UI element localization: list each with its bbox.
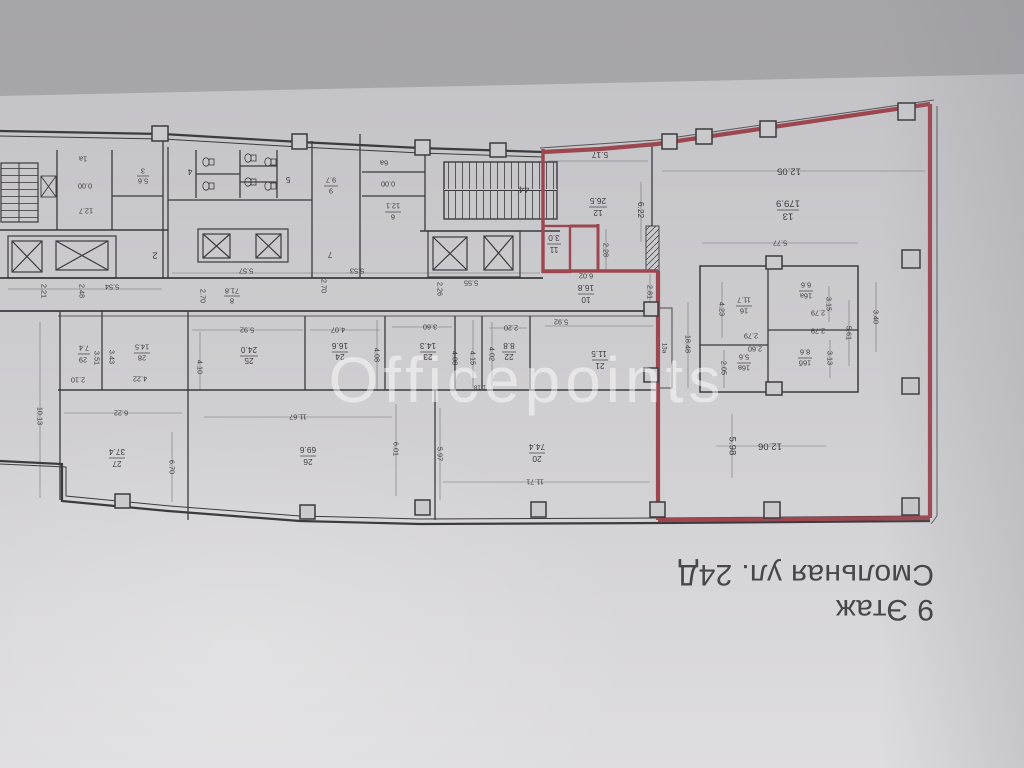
- plan-label: 5.55: [464, 279, 478, 288]
- plan-label: 25: [244, 356, 254, 366]
- plan-label: 12.1: [386, 202, 400, 211]
- plan-label: 5.17: [592, 150, 609, 160]
- plan-label: 5.53: [350, 267, 364, 276]
- stairwell-44: [444, 162, 557, 219]
- watermark-text: Officepoints: [329, 344, 726, 416]
- plan-label: 2.79: [811, 309, 825, 318]
- plan-label: 5.54: [105, 283, 119, 292]
- plan-label: 2.70: [199, 289, 208, 303]
- plan-label: 11.71: [526, 478, 544, 487]
- plan-label: 7: [327, 250, 332, 260]
- floor-plan-drawing: 1а 0.00 12.7 3 5.6 4 5 9.7 9 6а 0.00 12.…: [0, 0, 1024, 768]
- plan-label: 44: [518, 184, 529, 195]
- plan-label: 4: [187, 167, 192, 177]
- plan-label: 5.97: [436, 447, 445, 461]
- plan-label: 2.28: [602, 243, 611, 257]
- plan-label: 6.6: [801, 281, 811, 290]
- plan-label: 5.98: [727, 437, 738, 456]
- plan-label: 2.20: [504, 324, 518, 333]
- plan-label: 3.0: [548, 233, 560, 243]
- plan-label: 14.5: [135, 343, 149, 352]
- plan-label: 12.06: [758, 441, 782, 452]
- plan-label: 28: [138, 354, 146, 363]
- caption-address-line: Смольная ул. 24Д: [638, 557, 934, 592]
- plan-label: 4.07: [331, 326, 345, 335]
- plan-label: 5.61: [845, 326, 854, 340]
- plan-label: 4.10: [196, 360, 205, 374]
- plan-label: 3.60: [423, 323, 437, 332]
- plan-label: 16: [740, 307, 748, 316]
- plan-label: 6: [391, 213, 395, 222]
- plan-label: 6.22: [114, 409, 128, 418]
- plan-label: 4.23: [718, 302, 727, 316]
- floor-caption: 9 Этаж Смольная ул. 24Д: [638, 551, 934, 627]
- plan-label: 2.26: [436, 282, 445, 296]
- plan-label: 2: [152, 250, 157, 261]
- plan-label: 26.5: [590, 196, 607, 206]
- plan-label: 5.6: [739, 353, 749, 362]
- plan-label: 10: [581, 295, 591, 305]
- plan-label: 1а: [78, 155, 87, 164]
- plan-label: 27: [112, 459, 122, 469]
- plan-label: 11.7: [737, 296, 751, 305]
- plan-label: 2.79: [744, 332, 758, 341]
- plan-label: 2.21: [40, 284, 49, 298]
- plan-label: 3.40: [872, 310, 881, 324]
- plan-label: 26: [303, 457, 313, 467]
- stairwell-left: [1, 163, 38, 222]
- plan-label: 6а: [379, 159, 388, 168]
- plan-label: 71.8: [225, 287, 239, 296]
- plan-label: 12: [593, 208, 603, 218]
- plan-label: 7.4: [79, 344, 89, 353]
- plan-label: 37.4: [109, 447, 126, 457]
- plan-label: 6.70: [168, 460, 177, 474]
- plan-label: 16б: [799, 359, 811, 368]
- plan-label: 5: [285, 175, 290, 185]
- plan-label: 5.92: [240, 326, 254, 335]
- plan-label: 69.6: [300, 445, 317, 455]
- plan-label: 74.4: [529, 442, 546, 452]
- plan-label: 0.00: [381, 180, 395, 189]
- plan-label: 11.67: [289, 413, 307, 422]
- plan-label: 6.02: [579, 272, 593, 281]
- plan-label: 12.05: [777, 166, 801, 177]
- plan-label: 3.51: [93, 351, 102, 365]
- plan-label: 2.60: [748, 345, 762, 354]
- plan-label: 5.92: [554, 318, 568, 327]
- plan-label: 11: [549, 245, 558, 255]
- plan-label: 10.13: [36, 407, 45, 425]
- plan-label: 3.43: [108, 350, 117, 364]
- photo-edge-shadow: [880, 0, 1024, 768]
- plan-label: 16в: [738, 364, 750, 373]
- plan-label: 2.10: [71, 376, 85, 385]
- plan-label: 9.7: [326, 176, 336, 185]
- plan-label: 8: [230, 297, 234, 306]
- plan-label: 5.57: [239, 267, 253, 276]
- plan-label: 13: [783, 211, 794, 222]
- plan-label: 29: [79, 356, 87, 365]
- photographed-floor-plan: 1а 0.00 12.7 3 5.6 4 5 9.7 9 6а 0.00 12.…: [0, 0, 1024, 768]
- plan-label: 8.6: [800, 348, 810, 357]
- plan-label: 6.22: [636, 202, 646, 219]
- plan-label: 3.13: [826, 351, 835, 365]
- plan-label: 12.7: [79, 207, 93, 216]
- caption-floor-line: 9 Этаж: [638, 592, 934, 627]
- plan-label: 5.6: [138, 177, 148, 186]
- plan-label: 2.48: [78, 284, 87, 298]
- plan-label: 16.8: [578, 283, 595, 293]
- plan-label: 16а: [799, 292, 812, 301]
- plan-label: 20: [532, 454, 542, 464]
- plan-label: 2.81: [646, 285, 655, 299]
- plan-label: 6.01: [392, 442, 401, 456]
- plan-label: 4.22: [133, 375, 147, 384]
- plan-label: 3: [141, 167, 145, 176]
- plan-label: 24.0: [241, 345, 258, 355]
- plan-label: 0.00: [78, 182, 92, 191]
- plan-label: 5.77: [773, 239, 787, 248]
- plan-label: 2.70: [320, 279, 329, 293]
- plan-label: 179.9: [776, 198, 800, 209]
- plan-label: 2.79: [811, 327, 825, 336]
- plan-label: 9: [329, 187, 333, 196]
